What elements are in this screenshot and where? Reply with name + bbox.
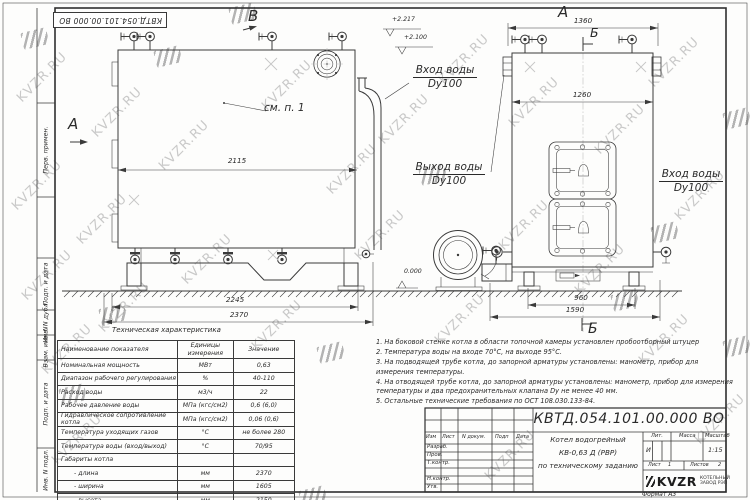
tech-cell: МВт xyxy=(177,359,234,372)
tech-cell: Температура уходящих газов xyxy=(58,429,177,436)
hdr-ndoc: N докум. xyxy=(462,435,485,441)
lit-label: Лит. xyxy=(651,434,663,440)
tech-row: Номинальная мощностьМВт0,63 xyxy=(58,358,294,372)
row-tkontr: Т.контр. xyxy=(427,461,450,467)
dim-1590: 1590 xyxy=(566,306,584,314)
scale-value: 1:15 xyxy=(708,447,723,454)
tech-table-header: Наименование показателя Единицы измерени… xyxy=(58,341,294,358)
hdr-izm: Изм xyxy=(426,435,436,441)
sheet-label: Лист xyxy=(648,463,661,469)
note-line: 4. На отводящей трубе котла, до запорной… xyxy=(376,378,734,398)
company-sub-2: ЗАВОД РЭП xyxy=(700,481,727,486)
side-view-letter: В xyxy=(248,8,258,25)
note-line: 3. На подводящей трубе котла, до запорно… xyxy=(376,358,734,378)
tech-cell: °С xyxy=(177,427,234,440)
dim-1260: 1260 xyxy=(573,91,591,99)
company-sub-1: КОТЕЛЬНЫЙ xyxy=(700,476,730,481)
dim-2245: 2245 xyxy=(226,296,244,304)
doc-name-3: по техническому заданию xyxy=(538,462,638,470)
company-logo: KVZR КОТЕЛЬНЫЙ ЗАВОД РЭП xyxy=(646,472,730,490)
tech-cell: МПа (кгс/см2) xyxy=(177,400,234,413)
water-outlet-label: Выход воды Dy100 xyxy=(406,161,492,188)
level-2100: +2.100 xyxy=(404,35,427,42)
tech-cell: 0,6 (6,0) xyxy=(234,402,294,409)
tech-cell: Гидравлическое сопротивление котла xyxy=(58,412,177,426)
tech-cell: мм xyxy=(177,467,234,480)
mass-label: Масса xyxy=(679,434,696,440)
tech-col-value: Значение xyxy=(234,346,294,353)
tech-cell: Диапазон рабочего регулирования xyxy=(58,375,177,382)
sheet-value: 1 xyxy=(668,463,671,469)
tech-col-unit: Единицы измерения xyxy=(177,341,234,358)
corner-designation-text: КВТД.054.101.00.000 ВО xyxy=(59,16,162,25)
section-b-bottom: Б xyxy=(588,322,598,337)
kvzr-logo-icon xyxy=(646,476,655,487)
tech-cell: Рабочее давление воды xyxy=(58,402,177,409)
note-line: 2. Температура воды на входе 70°С, на вы… xyxy=(376,348,734,358)
row-prov: Пров. xyxy=(427,453,442,459)
scale-label: Масштаб xyxy=(705,434,730,440)
front-view-letter: А xyxy=(558,4,568,21)
tech-cell: °С xyxy=(177,440,234,453)
sheets-value: 2 xyxy=(718,463,721,469)
tech-cell: МПа (кгс/см2) xyxy=(177,413,234,426)
water-inlet-dy: Dy100 xyxy=(425,78,465,91)
tech-cell: мм xyxy=(177,494,234,500)
tech-row: Рабочее давление водыМПа (кгс/см2)0,6 (6… xyxy=(58,399,294,413)
water-inlet-text: Вход воды xyxy=(413,64,478,78)
corner-designation-stamp: КВТД.054.101.00.000 ВО xyxy=(53,12,167,28)
tech-cell: 22 xyxy=(234,389,294,396)
tech-cell: Номинальная мощность xyxy=(58,362,177,369)
margin-label-podp-data: Подп. и дата xyxy=(43,263,50,306)
tech-row: Гидравлическое сопротивление котлаМПа (к… xyxy=(58,412,294,426)
tech-cell: - ширина xyxy=(58,483,177,490)
drawing-sheet: KVZR.RU KVZR.RU KVZR.RU KVZR.RU KVZR.RU … xyxy=(0,0,750,500)
dim-2115: 2115 xyxy=(228,157,246,165)
tech-cell: 40-110 xyxy=(234,375,294,382)
tech-row: Диапазон рабочего регулирования%40-110 xyxy=(58,372,294,386)
tech-table: Наименование показателя Единицы измерени… xyxy=(57,340,295,500)
tech-cell: 70/95 xyxy=(234,443,294,450)
side-view-arrow-letter: А xyxy=(68,116,78,133)
level-2217: +2.217 xyxy=(392,17,415,24)
doc-name-2: КВ-0,63 Д (РВР) xyxy=(559,449,617,457)
tech-row: Расход водым3/ч22 xyxy=(58,385,294,399)
tech-cell: м3/ч xyxy=(177,386,234,399)
row-utv: Утв. xyxy=(427,485,438,491)
dim-2370: 2370 xyxy=(230,311,248,319)
format-note: Формат А3 xyxy=(642,492,676,499)
hdr-data: Дата xyxy=(516,435,529,441)
tech-row: - высотамм2150 xyxy=(58,493,294,500)
note-line: 5. Остальные технические требования по О… xyxy=(376,397,734,407)
margin-label-perv-primen: Перв. примен. xyxy=(43,126,50,173)
tech-cell: мм xyxy=(177,481,234,494)
level-zero: 0.000 xyxy=(404,269,422,276)
doc-name-1: Котел водогрейный xyxy=(550,436,625,444)
company-name: KVZR xyxy=(657,474,697,489)
technical-notes: 1. На боковой стенке котла в области топ… xyxy=(376,338,734,407)
tech-row: - ширинамм1605 xyxy=(58,480,294,494)
see-note-label: см. п. 1 xyxy=(264,103,305,115)
water-outlet-text: Выход воды xyxy=(413,161,486,175)
tech-col-name: Наименование показателя xyxy=(58,346,177,353)
tech-cell xyxy=(177,454,234,467)
tech-row: Габариты котла xyxy=(58,453,294,467)
tech-cell: - длина xyxy=(58,470,177,477)
tech-cell: не более 280 xyxy=(234,429,294,436)
tech-row: - длинамм2370 xyxy=(58,466,294,480)
tech-table-title: Техническая характеристика xyxy=(112,327,221,335)
water-inlet-text-front: Вход воды xyxy=(659,168,724,182)
tech-cell: 0,63 xyxy=(234,362,294,369)
row-nkontr: Н.контр. xyxy=(427,477,451,483)
water-inlet-label-front: Вход воды Dy100 xyxy=(650,168,732,195)
water-inlet-label-side: Вход воды Dy100 xyxy=(405,64,485,91)
margin-label-vzam-inv: Взам. инв. N xyxy=(43,327,50,368)
tech-row: Температура уходящих газов°Сне более 280 xyxy=(58,426,294,440)
row-razrab: Разраб. xyxy=(427,445,448,451)
ground-line xyxy=(62,291,682,297)
hdr-list: Лист xyxy=(442,435,455,441)
tech-cell: Температура воды (вход/выход) xyxy=(58,443,177,450)
margin-label-inv-podl: Инв. N подл. xyxy=(43,449,50,491)
sheets-label: Листов xyxy=(690,463,709,469)
lit-value: И xyxy=(646,447,651,454)
dim-960: 960 xyxy=(574,294,588,302)
tech-row: Температура воды (вход/выход)°С70/95 xyxy=(58,439,294,453)
dim-1360: 1360 xyxy=(574,17,592,25)
tech-cell: % xyxy=(177,373,234,386)
title-designation: КВТД.054.101.00.000 ВО xyxy=(534,412,725,427)
tech-cell: 1605 xyxy=(234,483,294,490)
note-line: 1. На боковой стенке котла в области топ… xyxy=(376,338,734,348)
tech-cell: Габариты котла xyxy=(58,456,177,463)
margin-label-podp-data-2: Подп. и дата xyxy=(43,383,50,426)
section-b-top: Б xyxy=(590,26,599,40)
tech-cell: 0,06 (0,6) xyxy=(234,416,294,423)
tech-cell: Расход воды xyxy=(58,389,177,396)
hdr-podp: Подп xyxy=(495,435,509,441)
water-inlet-dy-front: Dy100 xyxy=(671,182,711,195)
water-outlet-dy: Dy100 xyxy=(429,175,469,188)
tech-cell: 2370 xyxy=(234,470,294,477)
side-view-linework xyxy=(70,26,433,326)
